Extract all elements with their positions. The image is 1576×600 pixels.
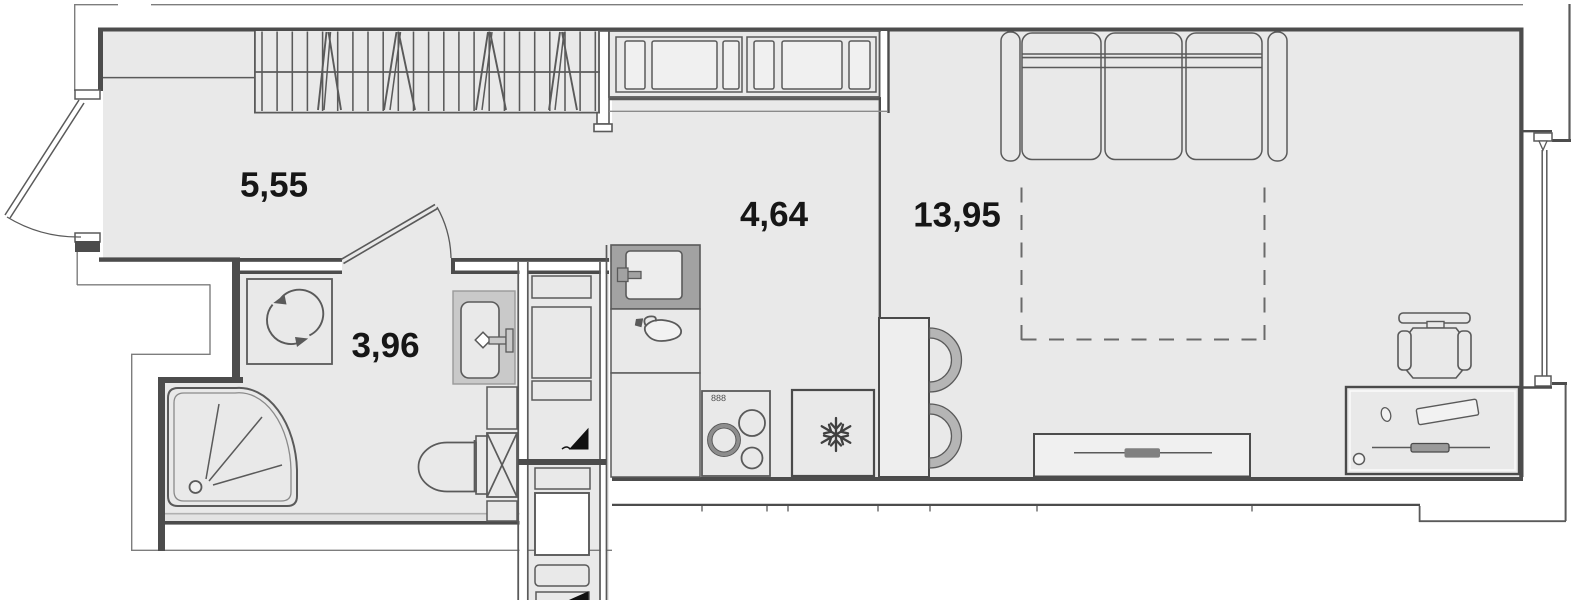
svg-text:5,55: 5,55 [240, 166, 308, 205]
svg-text:4,64: 4,64 [740, 195, 809, 234]
svg-text:13,95: 13,95 [913, 196, 1001, 235]
svg-text:3,96: 3,96 [351, 326, 419, 365]
svg-text:888: 888 [711, 393, 726, 403]
